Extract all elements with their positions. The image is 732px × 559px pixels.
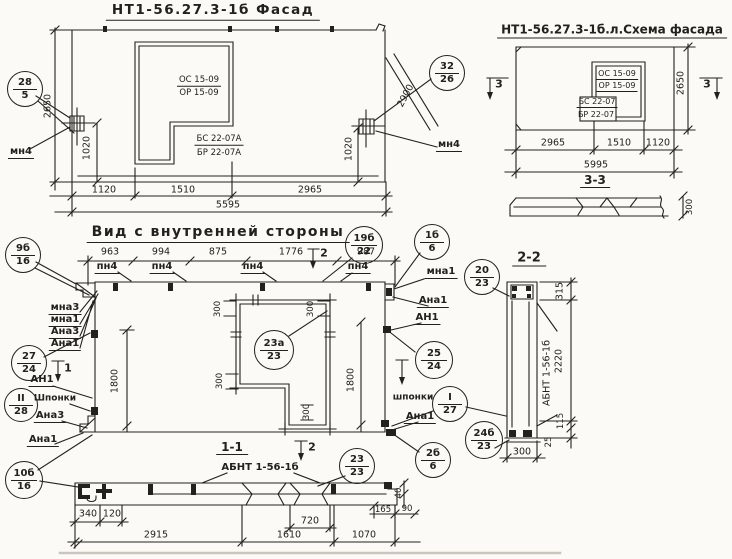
schema-dim-5995: 5995: [584, 160, 608, 170]
schema-title: НТ1-56.27.3-1б.л.Схема фасада: [497, 24, 727, 39]
section-1-1-dim-90: 90: [402, 505, 413, 514]
balloon-23-23: 2323: [339, 448, 375, 484]
inner-section2-top-label: 2: [320, 248, 328, 259]
inner-dim-1800-left: 1800: [110, 369, 120, 393]
section-1-1-dim-165: 165: [375, 506, 391, 515]
inner-dim-300-tl: 300: [214, 301, 223, 317]
inner-dim-300-b: 300: [303, 404, 312, 420]
facade-dim-5595: 5595: [216, 200, 240, 210]
inner-label-an1-right: АН1: [413, 313, 440, 325]
inner-label-ana3-lower: Ана3: [34, 411, 66, 423]
schema-dim-1120: 1120: [646, 138, 670, 148]
facade-dim-1020-left: 1020: [82, 136, 92, 160]
balloon-19b-22: 19б22: [345, 226, 383, 264]
facade-dim-1120: 1120: [92, 185, 116, 195]
facade-block-br: БР 22-07А: [197, 149, 241, 158]
section-2-2-dim-300: 300: [513, 447, 531, 457]
balloon-25-24: 2524: [415, 341, 453, 379]
facade-block-bs: БС 22-07А: [195, 135, 244, 146]
balloon-27-24: 2724: [11, 345, 47, 381]
section-1-1-dim-720: 720: [301, 516, 319, 526]
facade-dim-2650: 2650: [43, 94, 53, 118]
inner-label-shponki-right: шпонки: [393, 394, 434, 403]
inner-label-shponki-left: Шпонки: [34, 395, 76, 404]
section-1-1-dim-1070: 1070: [352, 530, 376, 540]
section-3-3-title: 3-3: [580, 174, 610, 188]
facade-dim-1020-right: 1020: [344, 137, 354, 161]
inner-dim-875: 875: [209, 247, 227, 257]
balloon-9b-16: 9б16: [5, 237, 41, 273]
inner-view-title: Вид с внутренней стороны: [87, 225, 350, 243]
section-1-1-mark2-label: 2: [308, 442, 316, 453]
inner-label-ana1: Ана1: [49, 339, 81, 351]
inner-dim-300-tr: 300: [307, 301, 316, 317]
section-2-2-dim-25: 25: [545, 437, 554, 448]
inner-section1-left-label: 1: [64, 363, 72, 374]
section-1-1-dim-40: 40: [395, 488, 404, 499]
schema-dim-1510: 1510: [607, 138, 631, 148]
schema-block-bs: БС 22-07: [577, 98, 618, 108]
balloon-1b-6: 1б6: [414, 224, 450, 260]
facade-dim-1510: 1510: [171, 185, 195, 195]
inner-pn4-1: пн4: [95, 262, 120, 274]
inner-dim-994: 994: [152, 247, 170, 257]
section-1-1-dim-1610: 1610: [277, 530, 301, 540]
balloon-20-23: 2023: [464, 259, 500, 295]
schema-section3-left: 3: [495, 79, 503, 90]
schema-opening-os: ОС 15-09: [596, 70, 638, 80]
inner-dim-1800-right: 1800: [346, 368, 356, 392]
inner-label-mna1-right: мна1: [425, 267, 458, 279]
balloon-32-26: 3226: [429, 55, 465, 91]
section-1-1-title: 1-1: [216, 441, 248, 455]
balloon-23a-23: 23а23: [254, 330, 294, 370]
balloon-I-27: I27: [432, 386, 468, 422]
facade-anchor-label-right: мн4: [436, 140, 462, 152]
section-3-3-dim-300: 300: [686, 199, 695, 215]
schema-opening-or: ОР 15-09: [597, 82, 638, 92]
facade-anchor-label-left: мн4: [8, 147, 34, 159]
inner-dim-1776: 1776: [279, 247, 303, 257]
balloon-24b-23: 24б23: [465, 421, 503, 459]
section-2-2-panel-label: АБНТ 1-56-1б: [542, 340, 552, 406]
inner-label-ana1-right2: Ана1: [404, 412, 436, 424]
section-2-2-dim-115: 115: [557, 413, 566, 429]
section-2-2-dim-315: 315: [555, 282, 565, 300]
section-2-2-title: 2-2: [512, 252, 546, 267]
schema-dim-2650: 2650: [676, 71, 686, 95]
balloon-II-28: II28: [4, 388, 38, 422]
section-1-1-dim-2915: 2915: [144, 530, 168, 540]
balloon-2b-6: 2б6: [415, 442, 451, 478]
inner-pn4-2: пн4: [150, 262, 175, 274]
inner-dim-963: 963: [101, 247, 119, 257]
section-1-1-dim-340: 340: [79, 509, 97, 519]
section-1-1-label: АБНТ 1-56-1б: [221, 463, 298, 473]
section-1-1-dim-120: 120: [103, 509, 121, 519]
balloon-28-5: 285: [7, 71, 43, 107]
section-2-2-dim-2220: 2220: [554, 349, 564, 373]
schema-section3-right: 3: [703, 79, 711, 90]
balloon-10b-16: 10б16: [5, 461, 43, 499]
inner-dim-300-ll: 300: [216, 373, 225, 389]
schema-dim-2965: 2965: [541, 138, 565, 148]
schema-block-br: БР 22-07: [578, 111, 614, 119]
inner-pn4-3: пн4: [241, 262, 266, 274]
inner-label-ana1-lower: Ана1: [27, 435, 59, 447]
facade-opening-or: ОР 15-09: [179, 89, 218, 98]
facade-opening-os: ОС 15-09: [177, 76, 221, 87]
blueprint-sheet: НТ1-56.27.3-1б Фасад ОС 15-09 ОР 15-09 Б…: [0, 0, 732, 559]
inner-label-ana1-right: Ана1: [417, 296, 449, 308]
facade-title: НТ1-56.27.3-1б Фасад: [106, 4, 320, 21]
facade-dim-2965: 2965: [298, 185, 322, 195]
